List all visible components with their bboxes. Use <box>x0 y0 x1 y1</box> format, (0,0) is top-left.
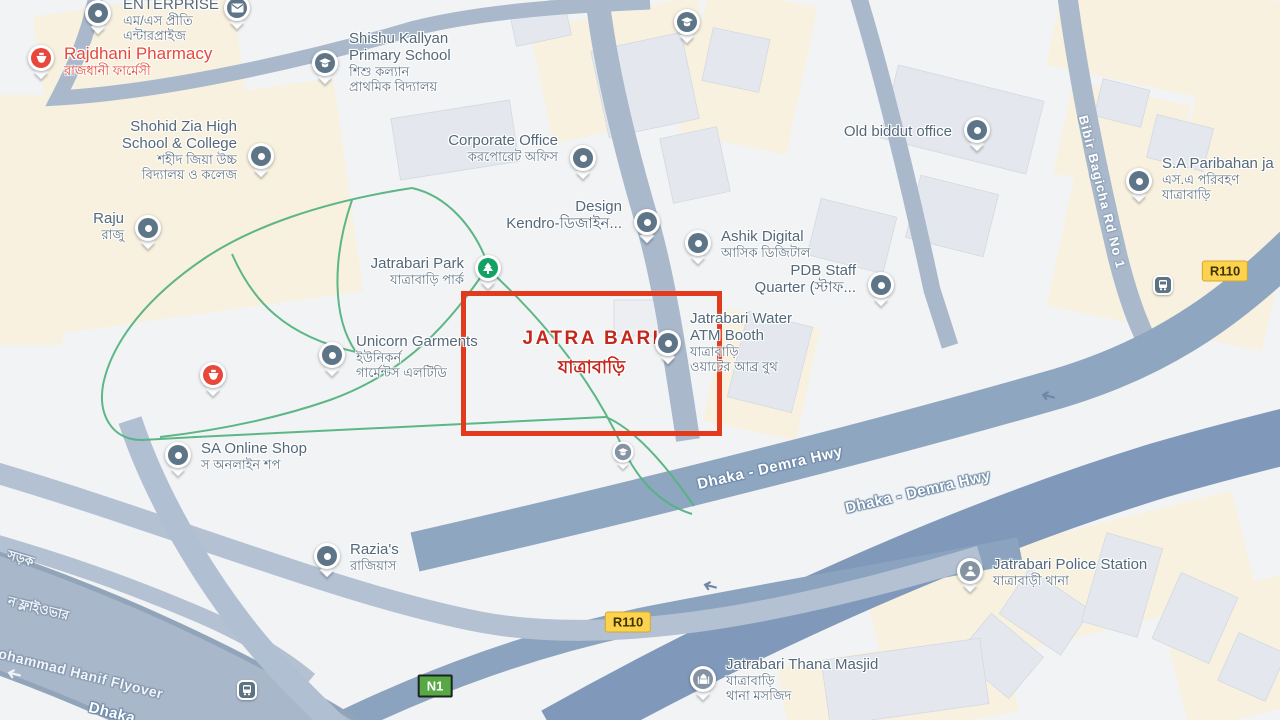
pin-dot <box>695 240 702 247</box>
place-pin[interactable] <box>634 209 660 235</box>
pin-dot <box>665 340 672 347</box>
place-pin[interactable] <box>674 9 700 35</box>
pin-dot <box>1136 178 1143 185</box>
pin-dot <box>258 153 265 160</box>
place-pin-icon <box>658 333 678 353</box>
route-badge: R110 <box>605 612 651 633</box>
place-pin[interactable] <box>957 558 983 584</box>
pin-dot <box>324 553 331 560</box>
place-pin[interactable] <box>655 330 681 356</box>
place-pin[interactable] <box>868 272 894 298</box>
place-pin-icon <box>317 546 337 566</box>
place-pin-icon <box>573 148 593 168</box>
place-pin-icon <box>88 3 108 23</box>
place-pin-icon <box>688 233 708 253</box>
place-pin[interactable] <box>165 442 191 468</box>
place-pin[interactable] <box>200 362 226 388</box>
route-badge: R110 <box>1202 261 1248 282</box>
pin-dot <box>145 225 152 232</box>
place-pin-icon <box>322 345 342 365</box>
place-pin-icon <box>967 120 987 140</box>
police-icon <box>960 561 980 581</box>
place-pin[interactable] <box>314 543 340 569</box>
bus-glyph <box>241 684 253 696</box>
route-badge: N1 <box>418 675 453 698</box>
place-pin-icon <box>1129 171 1149 191</box>
place-pin-icon <box>637 212 657 232</box>
place-pin[interactable] <box>248 143 274 169</box>
school-icon <box>615 444 631 460</box>
place-pin[interactable] <box>612 441 633 462</box>
place-pin[interactable] <box>685 230 711 256</box>
place-pin[interactable] <box>319 342 345 368</box>
place-pin[interactable] <box>475 255 501 281</box>
place-pin[interactable] <box>224 0 250 21</box>
place-pin[interactable] <box>1126 168 1152 194</box>
place-pin-icon <box>251 146 271 166</box>
place-pin[interactable] <box>690 666 716 692</box>
place-pin[interactable] <box>964 117 990 143</box>
place-pin[interactable] <box>312 50 338 76</box>
place-pin-icon <box>138 218 158 238</box>
pin-dot <box>878 282 885 289</box>
pin-dot <box>95 10 102 17</box>
bus-stop-icon[interactable] <box>1153 275 1173 295</box>
pin-dot <box>974 127 981 134</box>
bus-glyph <box>1157 279 1169 291</box>
place-pin[interactable] <box>135 215 161 241</box>
place-pin[interactable] <box>28 45 54 71</box>
pin-dot <box>580 155 587 162</box>
place-pin[interactable] <box>570 145 596 171</box>
pin-dot <box>329 352 336 359</box>
highlight-rectangle <box>461 291 722 436</box>
pin-dot <box>175 452 182 459</box>
school-icon <box>315 53 335 73</box>
bus-stop-icon[interactable] <box>237 680 257 700</box>
mosque-icon <box>693 669 713 689</box>
pin-dot <box>644 219 651 226</box>
place-pin-icon <box>871 275 891 295</box>
pharmacy-icon <box>203 365 223 385</box>
place-pin-icon <box>168 445 188 465</box>
map-viewport[interactable]: JATRA BARI যাত্রাবাড়ি ENTERPRISEএম/এস প… <box>0 0 1280 720</box>
pharmacy-icon <box>31 48 51 68</box>
school-icon <box>677 12 697 32</box>
park-tree-icon <box>478 258 498 278</box>
place-pin[interactable] <box>85 0 111 26</box>
